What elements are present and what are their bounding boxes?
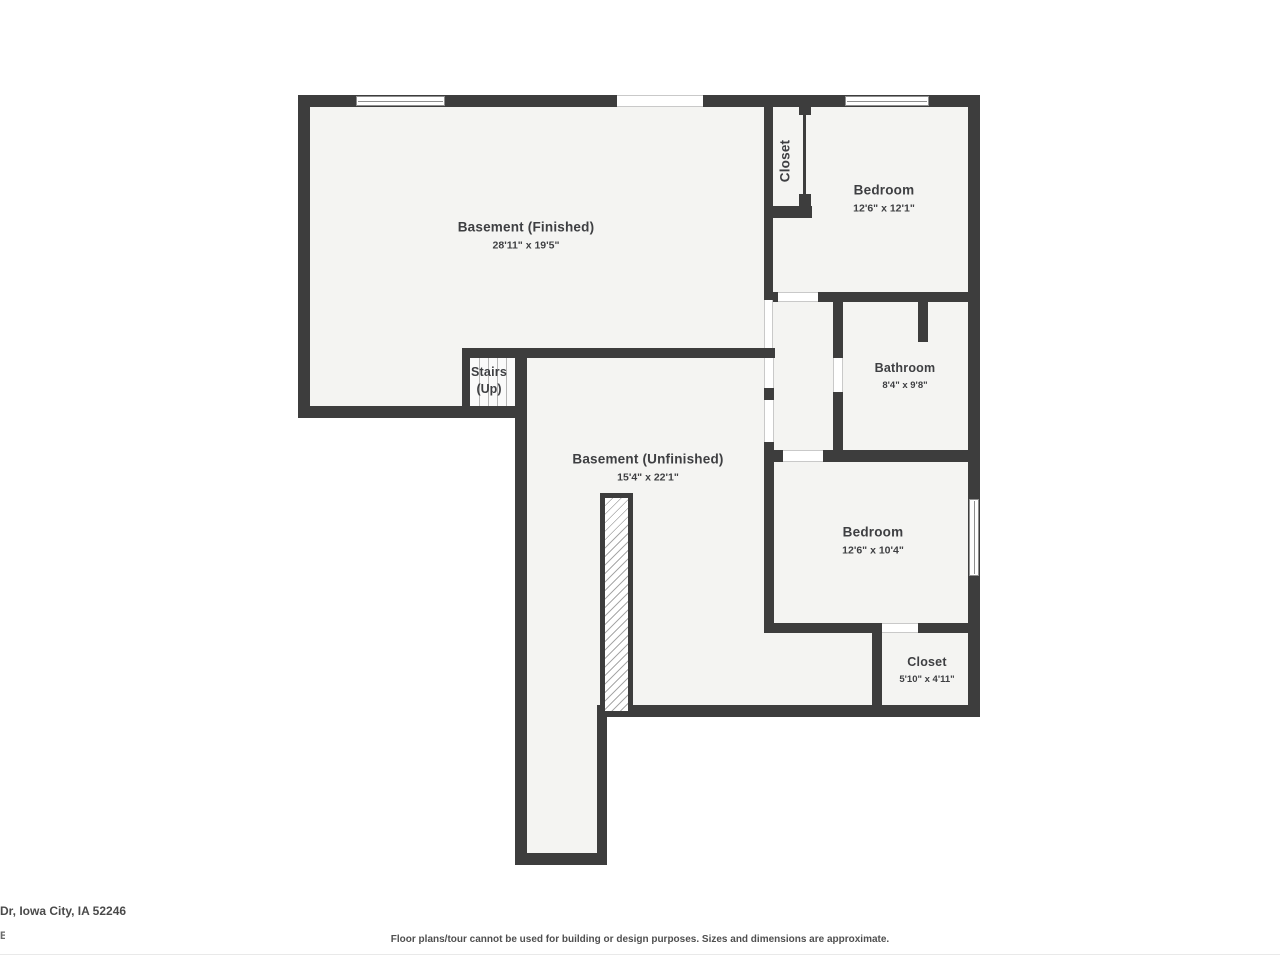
room-name: Basement (Finished): [458, 220, 595, 237]
floor-area: [521, 352, 603, 859]
room-name: Closet: [899, 655, 954, 671]
room-name: Bedroom: [853, 183, 915, 200]
room-dimensions: 8'4" x 9'8": [875, 379, 936, 391]
door-opening-closet-lower: [882, 623, 918, 633]
room-label-bathroom: Bathroom 8'4" x 9'8": [875, 361, 936, 392]
wall-corridor-right: [597, 705, 607, 865]
room-name: Basement (Unfinished): [572, 452, 723, 469]
wall-hall-left-segment: [764, 388, 774, 400]
door-opening-hall-middle: [764, 358, 774, 388]
bottom-divider-line: [0, 954, 1280, 955]
room-dimensions: 5'10" x 4'11": [899, 673, 954, 685]
room-dimensions: 28'11" x 19'5": [458, 239, 595, 252]
address-text: Dr, Iowa City, IA 52246: [0, 904, 126, 918]
room-label-stairs: Stairs (Up): [471, 365, 507, 397]
room-name: Closet: [778, 140, 795, 182]
room-label-basement-unfinished: Basement (Unfinished) 15'4" x 22'1": [572, 452, 723, 485]
wall-bedroom-lower-left: [764, 442, 774, 633]
wall-stairs-left: [462, 348, 470, 410]
room-dimensions: 15'4" x 22'1": [572, 471, 723, 484]
floorplan-canvas: Basement (Finished) 28'11" x 19'5" Close…: [0, 0, 1280, 960]
hatched-area: [600, 493, 633, 716]
disclaimer-text: Floor plans/tour cannot be used for buil…: [0, 934, 1280, 945]
room-label-closet-upper: Closet: [778, 140, 795, 182]
room-label-bedroom-upper: Bedroom 12'6" x 12'1": [853, 183, 915, 216]
room-name: Stairs: [471, 365, 507, 381]
wall-bedroom-lower-bottom: [764, 623, 882, 633]
window-pane-line: [847, 101, 927, 102]
window-symbol-top-right: [845, 96, 929, 106]
wall-opening-top: [617, 95, 703, 107]
wall-bathroom-left-bottom: [833, 392, 843, 452]
wall-closet-upper-right-bottom: [799, 194, 811, 208]
closet-sliding-door-panel: [803, 113, 806, 198]
wall-closet-lower-top: [918, 623, 980, 633]
wall-bottom-exterior: [600, 705, 980, 717]
room-label-basement-finished: Basement (Finished) 28'11" x 19'5": [458, 220, 595, 253]
window-symbol-right: [969, 499, 979, 576]
wall-corridor-bottom: [515, 853, 607, 865]
wall-finished-basement-bottom: [298, 406, 527, 418]
wall-bathroom-stub: [918, 302, 928, 342]
room-label-bedroom-lower: Bedroom 12'6" x 10'4": [842, 525, 904, 558]
room-label-closet-lower: Closet 5'10" x 4'11": [899, 655, 954, 686]
room-name: Bedroom: [842, 525, 904, 542]
wall-bathroom-left-top: [833, 300, 843, 358]
window-symbol-top-left: [356, 96, 445, 106]
wall-bedroom-lower-top-right: [823, 450, 980, 462]
wall-bedroom-lower-top-left: [764, 450, 783, 462]
room-dimensions: 12'6" x 10'4": [842, 544, 904, 557]
door-opening-hall-lower: [764, 400, 774, 442]
wall-closet-upper-left: [764, 95, 773, 300]
room-name: Bathroom: [875, 361, 936, 377]
wall-left-exterior: [298, 95, 310, 418]
wall-corridor-left: [515, 348, 527, 865]
door-opening-hall-top: [764, 300, 773, 348]
door-opening-bedroom-upper: [778, 292, 818, 302]
room-dimensions: 12'6" x 12'1": [853, 202, 915, 215]
door-opening-bathroom: [833, 358, 843, 392]
window-pane-line: [974, 501, 975, 574]
wall-mid-divider: [462, 348, 775, 358]
window-pane-line: [358, 101, 443, 102]
wall-closet-lower-left: [872, 623, 882, 717]
door-opening-bedroom-lower: [783, 450, 823, 462]
room-name-line2: (Up): [471, 382, 507, 398]
